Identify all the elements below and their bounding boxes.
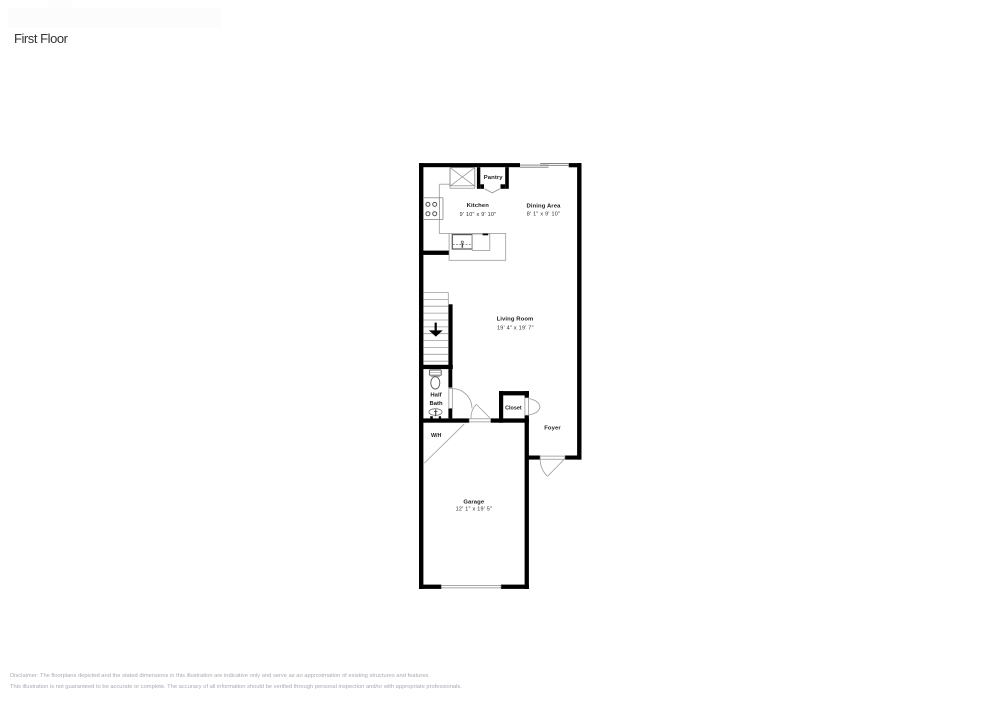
svg-text:19' 4" x 19' 7": 19' 4" x 19' 7" xyxy=(497,326,534,332)
svg-text:8' 1" x 9' 10": 8' 1" x 9' 10" xyxy=(527,212,560,218)
svg-text:Bath: Bath xyxy=(429,401,442,407)
svg-text:Dining Area: Dining Area xyxy=(527,204,562,210)
svg-text:Pantry: Pantry xyxy=(484,175,504,181)
svg-text:Closet: Closet xyxy=(505,405,522,411)
svg-text:9' 10" x 9' 10": 9' 10" x 9' 10" xyxy=(460,212,497,218)
svg-text:Living Room: Living Room xyxy=(497,317,534,323)
svg-text:Kitchen: Kitchen xyxy=(467,203,490,209)
svg-text:W/H: W/H xyxy=(431,433,442,439)
svg-text:12' 1" x 19' 5": 12' 1" x 19' 5" xyxy=(456,507,493,513)
svg-text:Garage: Garage xyxy=(463,499,485,505)
svg-text:Foyer: Foyer xyxy=(544,426,561,432)
svg-text:Half: Half xyxy=(430,392,441,398)
